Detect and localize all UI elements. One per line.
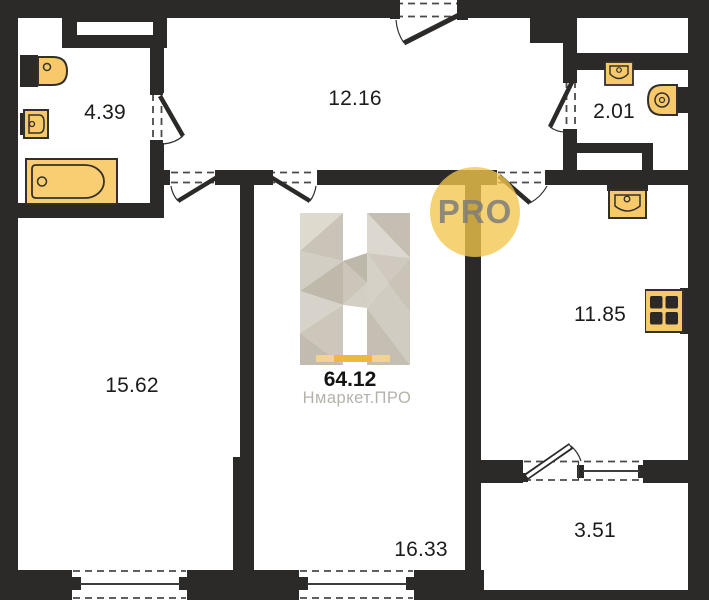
- stove-icon: [645, 288, 692, 334]
- pro-badge-label: PRO: [438, 193, 513, 231]
- room-label-living-room: 15.62: [97, 374, 167, 398]
- room-label-wc: 2.01: [584, 100, 644, 124]
- room-label-balcony: 3.51: [565, 519, 625, 543]
- toilet-icon: [20, 53, 68, 89]
- sink-icon: [20, 109, 49, 139]
- room-label-kitchen: 11.85: [565, 303, 635, 327]
- pro-badge: PRO: [430, 167, 520, 257]
- room-label-bathroom: 4.39: [75, 101, 135, 125]
- toilet-icon: [647, 84, 688, 116]
- floor-plan: 4.39 12.16 2.01 15.62 11.85 16.33 3.51 6…: [0, 0, 709, 600]
- window-glass: [80, 462, 640, 584]
- sink-icon: [607, 185, 648, 219]
- room-label-bedroom: 16.33: [386, 538, 456, 562]
- bathtub-icon: [25, 158, 118, 205]
- room-label-hallway: 12.16: [320, 87, 390, 111]
- sink-icon: [604, 57, 634, 86]
- brand-watermark: Нмаркет.ПРО: [282, 389, 432, 408]
